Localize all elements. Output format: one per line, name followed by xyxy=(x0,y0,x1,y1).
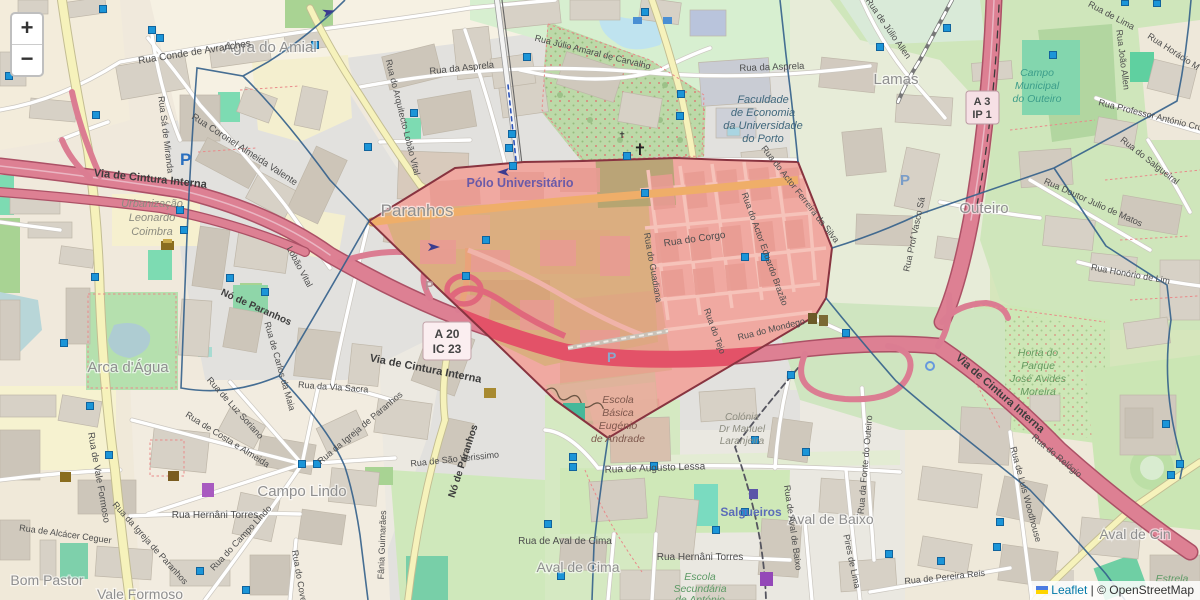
svg-text:Laranjeira: Laranjeira xyxy=(720,436,765,447)
svg-text:✝: ✝ xyxy=(618,130,626,140)
svg-text:Outeiro: Outeiro xyxy=(959,200,1008,217)
svg-text:Rua Hernâni Torres: Rua Hernâni Torres xyxy=(657,552,744,563)
svg-text:Básica: Básica xyxy=(602,407,634,419)
svg-text:Paranhos: Paranhos xyxy=(381,201,454,220)
svg-text:Pólo Universitário: Pólo Universitário xyxy=(467,176,574,190)
svg-text:Aval de Cin: Aval de Cin xyxy=(1099,526,1170,542)
svg-text:Salgueiros: Salgueiros xyxy=(720,505,782,519)
svg-text:Rua Hernâni Torres: Rua Hernâni Torres xyxy=(172,510,259,521)
svg-text:A 20: A 20 xyxy=(435,327,460,341)
svg-text:✝: ✝ xyxy=(633,142,646,159)
svg-text:Rua de Aval de Cima: Rua de Aval de Cima xyxy=(518,536,612,547)
svg-text:Eugénio: Eugénio xyxy=(599,420,638,432)
svg-text:Campo: Campo xyxy=(1020,67,1054,79)
svg-text:Arca d'Água: Arca d'Água xyxy=(87,359,169,376)
svg-text:Lamas: Lamas xyxy=(873,71,918,88)
svg-text:Campo Lindo: Campo Lindo xyxy=(257,483,346,500)
svg-text:Escola: Escola xyxy=(602,394,634,406)
svg-text:de António: de António xyxy=(675,594,725,600)
svg-text:do Outeiro: do Outeiro xyxy=(1012,93,1061,105)
svg-text:Urbanização: Urbanização xyxy=(121,198,183,210)
svg-text:Leonardo: Leonardo xyxy=(129,212,176,224)
svg-text:do Porto: do Porto xyxy=(742,133,784,145)
svg-text:P: P xyxy=(900,172,910,189)
svg-text:de Economia: de Economia xyxy=(731,107,795,119)
svg-text:Aval de Cima: Aval de Cima xyxy=(536,559,619,575)
svg-text:Coimbra: Coimbra xyxy=(131,226,173,238)
svg-text:Dr Manuel: Dr Manuel xyxy=(719,424,766,435)
svg-text:P: P xyxy=(180,150,191,169)
svg-text:Rua da Asprela: Rua da Asprela xyxy=(739,61,805,74)
svg-text:da Universidade: da Universidade xyxy=(723,120,803,132)
svg-text:Horta do: Horta do xyxy=(1018,347,1058,359)
svg-text:Faculdade: Faculdade xyxy=(737,94,788,106)
svg-text:Bom Pastor: Bom Pastor xyxy=(10,572,83,588)
svg-text:P: P xyxy=(607,349,616,365)
svg-text:de Andrade: de Andrade xyxy=(591,433,645,445)
svg-text:José Avides: José Avides xyxy=(1009,373,1067,385)
svg-text:IC 23: IC 23 xyxy=(433,342,462,356)
svg-text:Moreira: Moreira xyxy=(1020,386,1056,398)
svg-text:Municipal: Municipal xyxy=(1015,80,1060,92)
svg-text:A 3: A 3 xyxy=(974,96,991,108)
svg-text:Colónia: Colónia xyxy=(725,412,759,423)
svg-text:IP 1: IP 1 xyxy=(972,109,991,121)
svg-text:P: P xyxy=(425,278,434,293)
svg-text:Parque: Parque xyxy=(1021,360,1055,372)
svg-text:Escola: Escola xyxy=(684,571,716,583)
svg-text:Vale Formoso: Vale Formoso xyxy=(97,586,183,600)
